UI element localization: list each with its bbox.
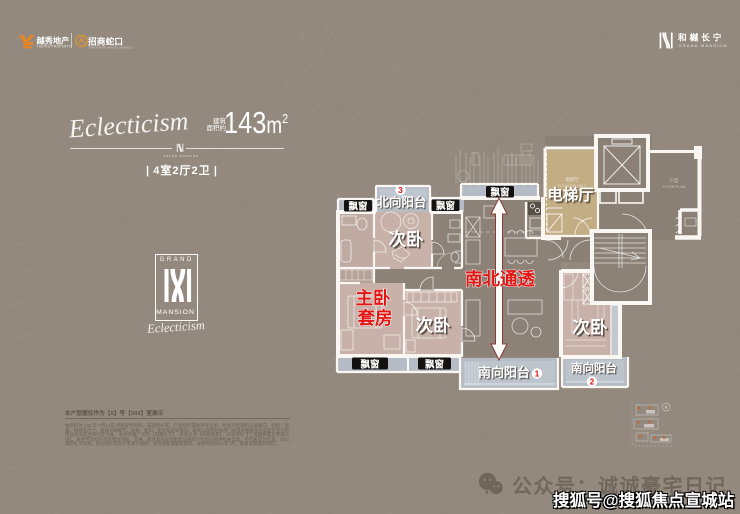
svg-text:次卧: 次卧 bbox=[416, 316, 451, 336]
svg-text:飘窗: 飘窗 bbox=[424, 358, 445, 370]
svg-text:南向阳台: 南向阳台 bbox=[571, 361, 617, 375]
svg-text:飘窗: 飘窗 bbox=[489, 186, 510, 198]
svg-text:套房: 套房 bbox=[357, 308, 393, 328]
svg-text:3: 3 bbox=[398, 185, 403, 195]
svg-text:FLOOR PLAN: FLOOR PLAN bbox=[663, 185, 686, 189]
svg-text:北向阳台: 北向阳台 bbox=[376, 195, 426, 210]
svg-text:电梯厅: 电梯厅 bbox=[547, 185, 594, 204]
svg-text:飘窗: 飘窗 bbox=[347, 200, 368, 212]
svg-text:飘窗: 飘窗 bbox=[435, 200, 456, 212]
svg-text:户型: 户型 bbox=[670, 177, 679, 184]
svg-text:南向阳台: 南向阳台 bbox=[478, 365, 530, 380]
svg-text:次卧: 次卧 bbox=[573, 318, 608, 338]
svg-text:电梯厅: 电梯厅 bbox=[565, 176, 579, 183]
svg-text:次卧: 次卧 bbox=[389, 230, 424, 250]
svg-text:南北通透: 南北通透 bbox=[465, 269, 535, 289]
svg-text:1: 1 bbox=[535, 369, 540, 379]
svg-text:2: 2 bbox=[590, 377, 595, 387]
svg-text:主卧: 主卧 bbox=[356, 288, 391, 308]
svg-text:飘窗: 飘窗 bbox=[359, 358, 380, 370]
